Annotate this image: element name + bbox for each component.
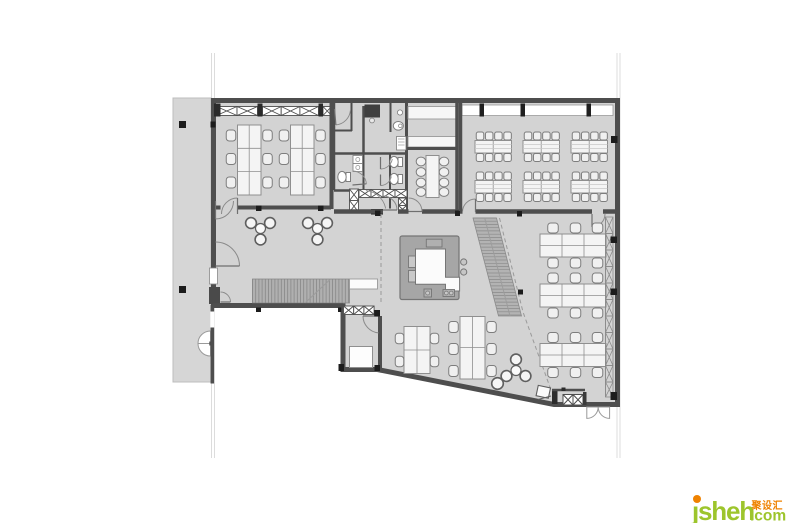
svg-text:.com: .com: [750, 508, 786, 524]
